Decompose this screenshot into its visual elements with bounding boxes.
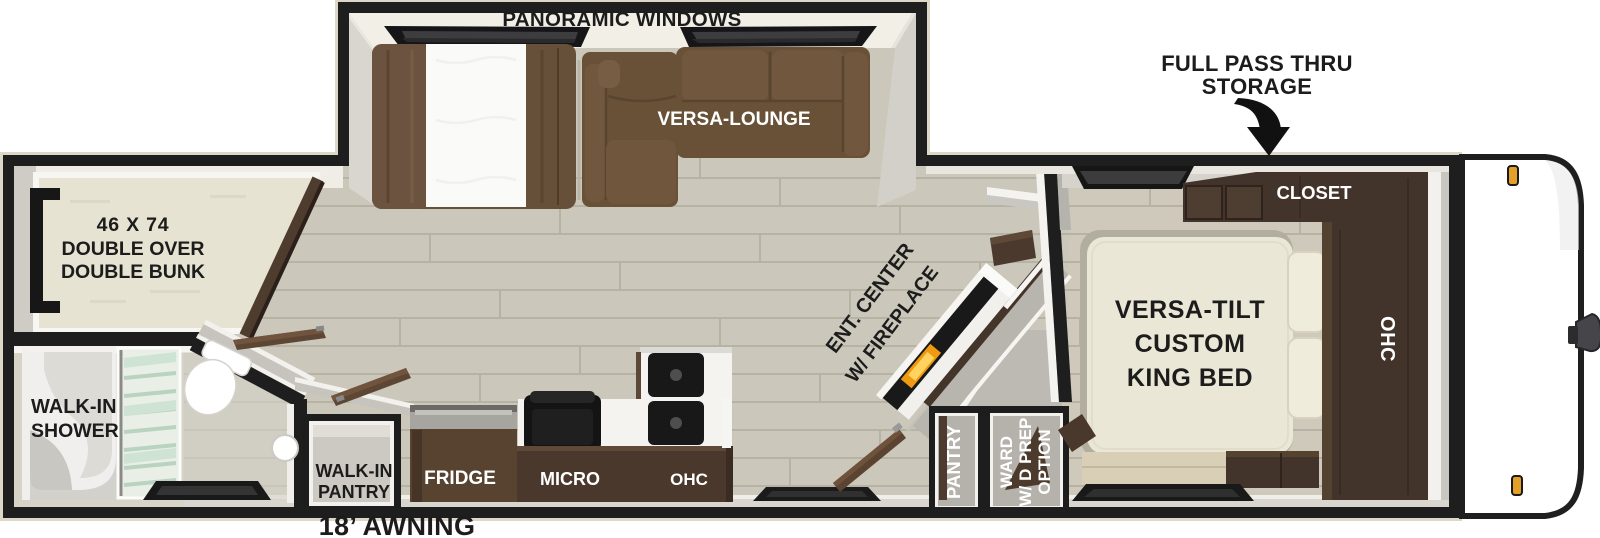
svg-text:WARD: WARD bbox=[997, 436, 1016, 488]
svg-text:18’ AWNING: 18’ AWNING bbox=[319, 511, 476, 538]
svg-text:DOUBLE BUNK: DOUBLE BUNK bbox=[61, 261, 205, 283]
svg-text:STORAGE: STORAGE bbox=[1202, 74, 1313, 99]
svg-text:SHOWER: SHOWER bbox=[31, 420, 119, 442]
svg-text:PANORAMIC WINDOWS: PANORAMIC WINDOWS bbox=[502, 8, 741, 31]
svg-text:FULL PASS THRU: FULL PASS THRU bbox=[1161, 51, 1353, 76]
svg-text:FRIDGE: FRIDGE bbox=[424, 468, 496, 489]
svg-text:DOUBLE OVER: DOUBLE OVER bbox=[61, 238, 204, 260]
svg-text:PANTRY: PANTRY bbox=[943, 424, 964, 499]
svg-text:46 X 74: 46 X 74 bbox=[97, 214, 170, 236]
svg-text:W/ D PREP: W/ D PREP bbox=[1016, 418, 1035, 507]
svg-text:VERSA-TILT: VERSA-TILT bbox=[1115, 296, 1265, 324]
svg-text:OHC: OHC bbox=[1376, 316, 1398, 362]
svg-text:KING BED: KING BED bbox=[1127, 364, 1253, 392]
svg-text:PANTRY: PANTRY bbox=[318, 482, 390, 502]
svg-text:CUSTOM: CUSTOM bbox=[1135, 330, 1246, 358]
svg-text:OHC: OHC bbox=[670, 470, 708, 489]
svg-text:VERSA-LOUNGE: VERSA-LOUNGE bbox=[657, 109, 810, 130]
svg-text:WALK-IN: WALK-IN bbox=[31, 396, 117, 418]
svg-text:CLOSET: CLOSET bbox=[1276, 182, 1352, 203]
svg-text:OPTION: OPTION bbox=[1035, 429, 1054, 494]
svg-text:WALK-IN: WALK-IN bbox=[316, 461, 393, 481]
svg-text:MICRO: MICRO bbox=[540, 469, 600, 489]
